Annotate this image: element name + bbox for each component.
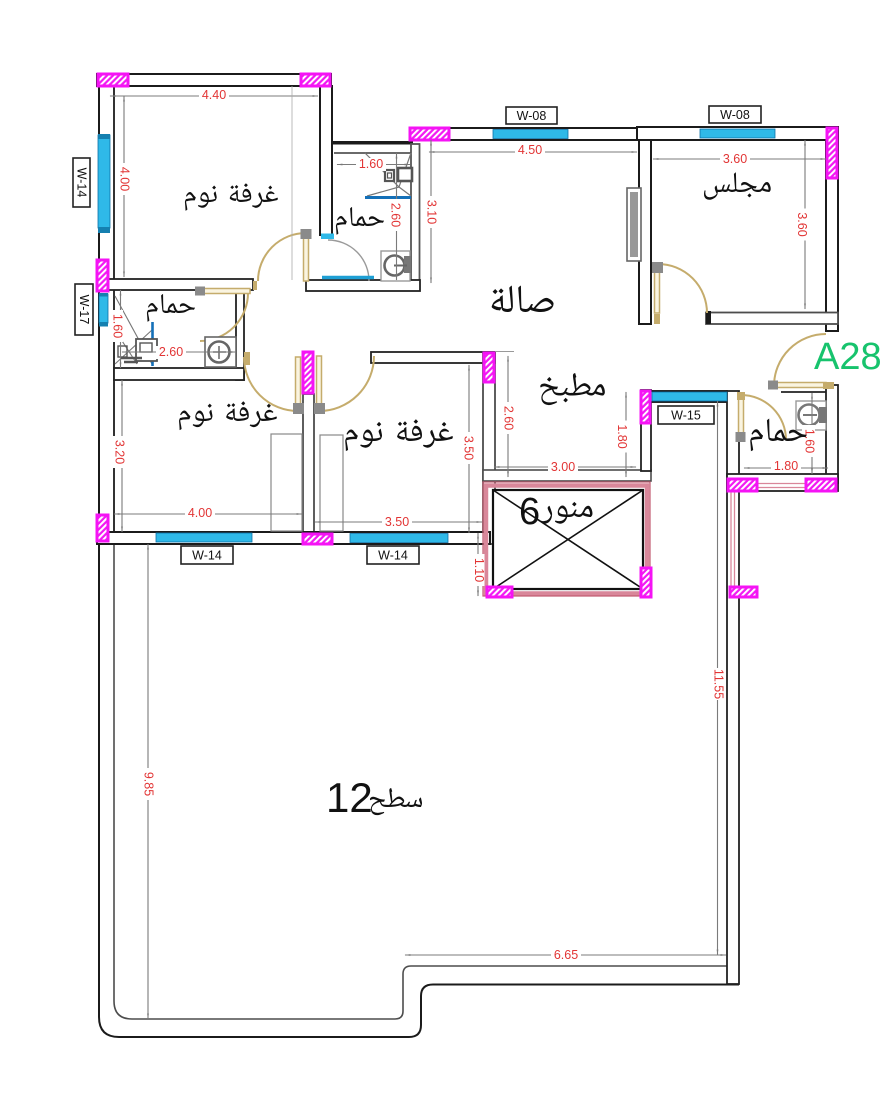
svg-text:6: 6: [519, 491, 540, 533]
svg-text:3.60: 3.60: [795, 212, 809, 236]
svg-text:W-08: W-08: [720, 108, 750, 122]
svg-text:A28: A28: [814, 336, 882, 378]
svg-text:W-08: W-08: [517, 109, 547, 123]
svg-text:4.50: 4.50: [518, 143, 542, 157]
svg-text:1.60: 1.60: [359, 157, 383, 171]
svg-text:3.20: 3.20: [113, 440, 127, 464]
svg-text:4.40: 4.40: [202, 88, 226, 102]
svg-text:1.80: 1.80: [774, 459, 798, 473]
svg-text:9.85: 9.85: [142, 772, 156, 796]
svg-text:W-15: W-15: [671, 409, 701, 423]
svg-text:W-14: W-14: [192, 549, 222, 563]
svg-text:3.10: 3.10: [425, 200, 439, 224]
svg-text:11.55: 11.55: [712, 669, 726, 699]
svg-text:3.50: 3.50: [385, 515, 409, 529]
svg-text:4.00: 4.00: [188, 506, 212, 520]
svg-text:W-14: W-14: [75, 168, 89, 198]
svg-text:1.60: 1.60: [803, 429, 817, 453]
svg-text:4.00: 4.00: [118, 167, 132, 191]
svg-text:2.60: 2.60: [389, 203, 403, 227]
svg-text:2.60: 2.60: [159, 345, 183, 359]
svg-text:W-14: W-14: [378, 549, 408, 563]
svg-text:2.60: 2.60: [502, 406, 516, 430]
svg-text:3.60: 3.60: [723, 152, 747, 166]
svg-text:3.00: 3.00: [551, 460, 575, 474]
svg-text:1.10: 1.10: [472, 558, 486, 582]
svg-text:1.80: 1.80: [615, 424, 629, 448]
svg-text:12: 12: [326, 774, 373, 821]
svg-text:W-17: W-17: [77, 295, 91, 325]
svg-text:1.60: 1.60: [111, 314, 125, 338]
svg-text:3.50: 3.50: [462, 436, 476, 460]
svg-text:6.65: 6.65: [554, 948, 578, 962]
